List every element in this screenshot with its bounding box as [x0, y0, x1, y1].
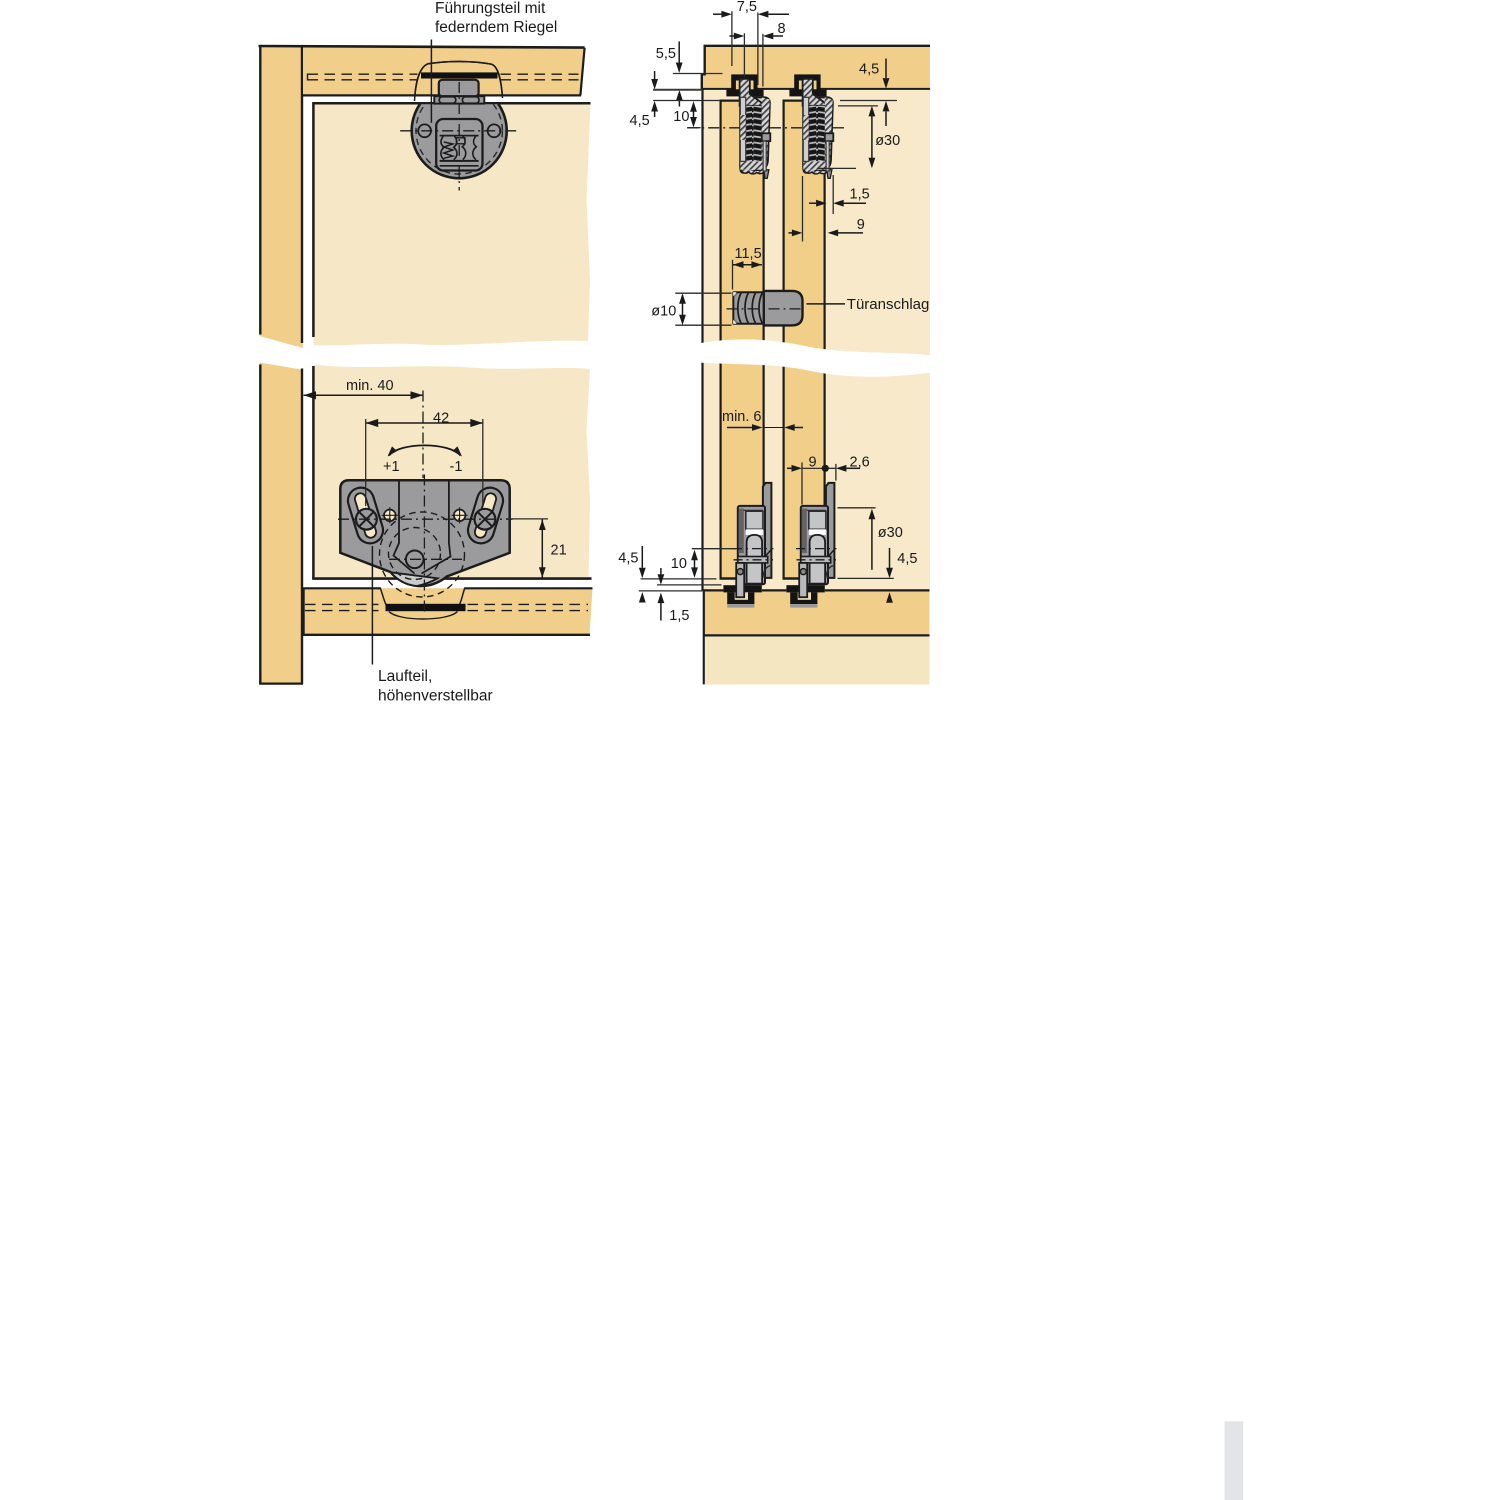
svg-text:5,5: 5,5 [656, 46, 676, 62]
svg-text:8: 8 [778, 21, 786, 37]
svg-text:Laufteil,: Laufteil, [378, 668, 432, 685]
svg-text:+1: +1 [383, 459, 400, 475]
svg-text:-1: -1 [450, 459, 463, 475]
svg-text:42: 42 [433, 411, 449, 427]
svg-text:min. 6: min. 6 [722, 409, 762, 425]
svg-text:4,5: 4,5 [618, 550, 638, 566]
svg-text:Führungsteil mit: Führungsteil mit [435, 0, 546, 17]
svg-text:11,5: 11,5 [735, 246, 762, 262]
svg-text:1,5: 1,5 [669, 608, 689, 624]
svg-text:ø30: ø30 [878, 525, 903, 541]
svg-text:4,5: 4,5 [859, 62, 879, 78]
svg-text:ø10: ø10 [651, 303, 676, 319]
svg-text:1,5: 1,5 [850, 187, 870, 203]
svg-text:Türanschlag: Türanschlag [847, 296, 930, 313]
svg-text:min. 40: min. 40 [346, 378, 394, 394]
svg-text:federndem Riegel: federndem Riegel [435, 19, 557, 36]
svg-text:ø30: ø30 [875, 133, 900, 149]
svg-text:21: 21 [551, 543, 567, 559]
svg-text:10: 10 [671, 556, 687, 572]
svg-text:10: 10 [673, 109, 689, 125]
svg-text:2,6: 2,6 [850, 454, 870, 470]
svg-text:9: 9 [857, 217, 865, 233]
svg-text:7,5: 7,5 [737, 0, 757, 15]
svg-text:höhenverstellbar: höhenverstellbar [378, 687, 493, 704]
svg-text:4,5: 4,5 [630, 113, 650, 129]
svg-text:4,5: 4,5 [897, 551, 917, 567]
